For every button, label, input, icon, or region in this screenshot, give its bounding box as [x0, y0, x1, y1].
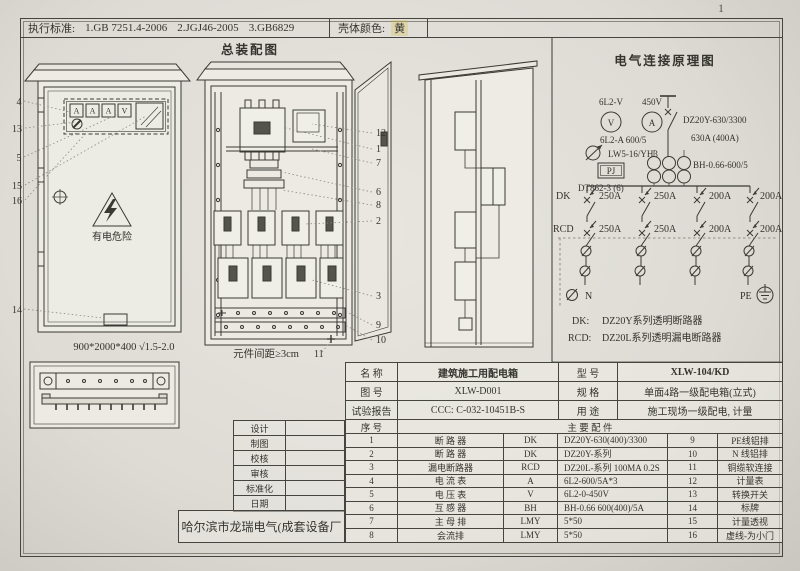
part-spec: 6L2-0-450V	[558, 488, 668, 501]
part-name2: 计量表	[718, 475, 782, 488]
part-code: A	[504, 475, 558, 488]
sign-label: 标准化	[234, 481, 286, 495]
rcd-rating-2: 250A	[654, 224, 677, 235]
cabinet-front-view	[25, 64, 190, 332]
part-name: 互 感 器	[398, 502, 504, 515]
sign-row: 制图	[234, 436, 344, 451]
ammeter-label: A	[106, 107, 112, 116]
branch-breaker-row-2	[218, 258, 343, 298]
n-terminal-symbol	[567, 289, 578, 301]
cabinet-side-view	[419, 61, 537, 347]
n-label: N	[585, 291, 592, 302]
selector-switch-symbol	[586, 145, 602, 160]
sign-label: 设计	[234, 421, 286, 435]
drawing-no-value: XLW-D001	[398, 382, 559, 400]
busbar-detail-view	[30, 362, 179, 428]
ammeter-label: A	[90, 107, 96, 116]
parts-row: 6 互 感 器 BH BH-0.66 600(400)/5A 14 标牌	[346, 502, 782, 516]
pj-label: PJ	[607, 166, 616, 176]
schematic-title: 电气连接原理图	[585, 50, 745, 69]
parts-row: 7 主 母 排 LMY 5*50 15 计量透视	[346, 515, 782, 529]
part-no2: 13	[668, 488, 718, 501]
part-no2: 16	[668, 529, 718, 543]
sign-label: 校核	[234, 451, 286, 465]
company-name: 哈尔滨市龙瑞电气(成套设备厂	[178, 510, 345, 543]
part-name: 主 母 排	[398, 515, 504, 528]
callout-1: 1	[376, 144, 381, 155]
callout-6: 6	[376, 187, 381, 198]
dk-rating-1: 250A	[599, 191, 622, 202]
table-row: 名 称 建筑施工用配电箱 型 号 XLW-104/KD	[346, 363, 782, 382]
model-label: 型 号	[559, 363, 618, 381]
callout-11: 11	[314, 349, 324, 360]
part-no: 3	[346, 461, 398, 474]
part-code: V	[504, 488, 558, 501]
part-spec: 5*50	[558, 529, 668, 543]
callout-4: 4	[17, 97, 22, 108]
scanned-drawing-page: { "page_number": "1", "colors": {"paper"…	[0, 0, 800, 571]
rcd-rating-3: 200A	[709, 224, 732, 235]
main-breaker-label: DZ20Y-630/3300	[683, 115, 747, 125]
selector-label: LW5-16/YH3	[608, 149, 658, 159]
pt-label: 6L2-V	[599, 97, 623, 107]
pe-ground-symbol	[757, 284, 773, 303]
usage-label: 用 途	[559, 401, 618, 419]
callout-10: 10	[376, 335, 386, 346]
product-name: 建筑施工用配电箱	[398, 363, 559, 381]
sign-row: 校核	[234, 451, 344, 466]
sign-row: 日期	[234, 496, 344, 511]
callout-14: 14	[12, 305, 22, 316]
parts-row: 2 断 路 器 DK DZ20Y-系列 10 N 线铝排	[346, 448, 782, 462]
parts-row: 8 会流排 LMY 5*50 16 虚线-为小门	[346, 529, 782, 543]
shell-color-value: 黄	[391, 20, 408, 36]
legend-dk-value: DZ20Y系列透明断路器	[602, 314, 703, 327]
standard-3: 3.GB6829	[249, 22, 295, 34]
part-no2: 15	[668, 515, 718, 528]
drawing-no-label: 图 号	[346, 382, 398, 400]
sign-label: 制图	[234, 436, 286, 450]
rcd-rating-1: 250A	[599, 224, 622, 235]
ammeter-letter: A	[649, 118, 656, 128]
table-row: 试验报告 CCC: C-032-10451B-S 用 途 施工现场一级配电, 计…	[346, 401, 782, 420]
pe-label: PE	[740, 291, 752, 302]
callout-7: 7	[376, 158, 381, 169]
pt-voltage: 450V	[642, 97, 663, 107]
part-name: 电 流 表	[398, 475, 504, 488]
legend-rcd-value: DZ20L系列透明漏电断路器	[602, 331, 721, 344]
cabinet-dimension: 900*2000*400 √1.5-2.0	[73, 341, 174, 353]
part-code: LMY	[504, 515, 558, 528]
part-no: 4	[346, 475, 398, 488]
dk-rating-3: 200A	[709, 191, 732, 202]
warning-text: 有电危险	[92, 230, 132, 243]
parts-header: 主 要 配 件	[398, 420, 782, 433]
cabinet-open-view	[197, 62, 391, 345]
standard-1: 1.GB 7251.4-2006	[85, 22, 167, 34]
parts-row: 3 漏电断路器 RCD DZ20L-系列 100MA 0.2S 11 铜缆软连接	[346, 461, 782, 475]
part-name: 断 路 器	[398, 448, 504, 461]
name-label: 名 称	[346, 363, 398, 381]
part-code: DK	[504, 434, 558, 447]
part-spec: DZ20L-系列 100MA 0.2S	[558, 461, 668, 474]
callout-13: 13	[12, 124, 22, 135]
part-name: 会流排	[398, 529, 504, 543]
test-report-value: CCC: C-032-10451B-S	[398, 401, 559, 419]
part-no: 1	[346, 434, 398, 447]
dk-rating-4: 200A	[760, 191, 783, 202]
test-report-label: 试验报告	[346, 401, 398, 419]
standard-2: 2.JGJ46-2005	[177, 22, 238, 34]
callout-5: 5	[17, 153, 22, 164]
sign-value	[286, 496, 344, 511]
sign-row: 标准化	[234, 481, 344, 496]
part-spec: 5*50	[558, 515, 668, 528]
part-spec: DZ20Y-系列	[558, 448, 668, 461]
part-code: DK	[504, 448, 558, 461]
table-row: 序 号 主 要 配 件	[346, 420, 782, 434]
table-row: 图 号 XLW-D001 规 格 单面4路一级配电箱(立式)	[346, 382, 782, 401]
sign-value	[286, 451, 344, 465]
dk-rating-2: 250A	[654, 191, 677, 202]
component-spacing-note: 元件间距≥3cm	[233, 347, 299, 360]
part-name2: 虚线-为小门	[718, 529, 782, 543]
parts-row: 4 电 流 表 A 6L2-600/5A*3 12 计量表	[346, 475, 782, 489]
callout-9: 9	[376, 320, 381, 331]
sign-label: 日期	[234, 496, 286, 511]
part-no: 2	[346, 448, 398, 461]
legend-dk-key: DK:	[572, 316, 589, 327]
callout-16: 16	[12, 196, 22, 207]
part-name2: 转换开关	[718, 488, 782, 501]
callout-3: 3	[376, 291, 381, 302]
sign-label: 审核	[234, 466, 286, 480]
part-name: 电 压 表	[398, 488, 504, 501]
rcd-rating-4: 200A	[760, 224, 783, 235]
main-rating-label: 630A (400A)	[691, 133, 739, 143]
part-no: 7	[346, 515, 398, 528]
part-no2: 10	[668, 448, 718, 461]
part-name2: PE线铝排	[718, 434, 782, 447]
part-spec: 6L2-600/5A*3	[558, 475, 668, 488]
callout-2: 2	[376, 216, 381, 227]
part-name: 漏电断路器	[398, 461, 504, 474]
spec-value: 单面4路一级配电箱(立式)	[618, 382, 782, 400]
main-incoming-breaker-symbol	[660, 96, 677, 157]
standards-label: 执行标准:	[28, 20, 75, 36]
part-no: 8	[346, 529, 398, 543]
part-no2: 11	[668, 461, 718, 474]
standards-cell: 执行标准: 1.GB 7251.4-2006 2.JGJ46-2005 3.GB…	[20, 18, 330, 37]
sign-value	[286, 436, 344, 450]
part-no: 5	[346, 488, 398, 501]
sign-value	[286, 421, 344, 435]
shell-color-cell: 壳体颜色: 黄	[330, 18, 428, 37]
sign-value	[286, 466, 344, 480]
sign-row: 审核	[234, 466, 344, 481]
part-name2: N 线铝排	[718, 448, 782, 461]
assembly-title: 总装配图	[185, 39, 315, 58]
kwh-meter	[293, 110, 325, 142]
parts-row: 5 电 压 表 V 6L2-0-450V 13 转换开关	[346, 488, 782, 502]
usage-value: 施工现场一级配电, 计量	[618, 401, 782, 419]
part-name2: 标牌	[718, 502, 782, 515]
part-code: LMY	[504, 529, 558, 543]
seq-label: 序 号	[346, 420, 398, 433]
part-name2: 铜缆软连接	[718, 461, 782, 474]
standards-strip: 执行标准: 1.GB 7251.4-2006 2.JGJ46-2005 3.GB…	[20, 18, 783, 38]
spec-label: 规 格	[559, 382, 618, 400]
parts-row: 1 断 路 器 DK DZ20Y-630(400)/3300 9 PE线铝排	[346, 434, 782, 448]
callout-12: 12	[376, 128, 386, 139]
part-no2: 14	[668, 502, 718, 515]
voltmeter-letter: V	[608, 118, 615, 128]
callout-8: 8	[376, 200, 381, 211]
ammeter-label: A	[74, 107, 80, 116]
signature-block: 设计 制图 校核 审核 标准化 日期	[233, 420, 345, 512]
part-code: BH	[504, 502, 558, 515]
part-spec: DZ20Y-630(400)/3300	[558, 434, 668, 447]
rcd-row-label: RCD	[553, 224, 574, 235]
dk-row-label: DK	[556, 191, 571, 202]
part-code: RCD	[504, 461, 558, 474]
legend-rcd-key: RCD:	[568, 333, 591, 344]
sign-value	[286, 481, 344, 495]
part-name: 断 路 器	[398, 434, 504, 447]
open-door	[355, 62, 391, 341]
callout-15: 15	[12, 181, 22, 192]
part-no2: 12	[668, 475, 718, 488]
part-no2: 9	[668, 434, 718, 447]
part-spec: BH-0.66 600(400)/5A	[558, 502, 668, 515]
ct-label: BH-0.66-600/5	[693, 160, 748, 170]
model-value: XLW-104/KD	[618, 363, 782, 381]
title-block-table: 名 称 建筑施工用配电箱 型 号 XLW-104/KD 图 号 XLW-D001…	[345, 362, 783, 543]
shell-color-label: 壳体颜色:	[338, 20, 385, 36]
part-no: 6	[346, 502, 398, 515]
sign-row: 设计	[234, 421, 344, 436]
ct-meter-label: 6L2-A 600/5	[600, 135, 647, 145]
part-name2: 计量透视	[718, 515, 782, 528]
voltmeter-label: V	[122, 107, 128, 116]
